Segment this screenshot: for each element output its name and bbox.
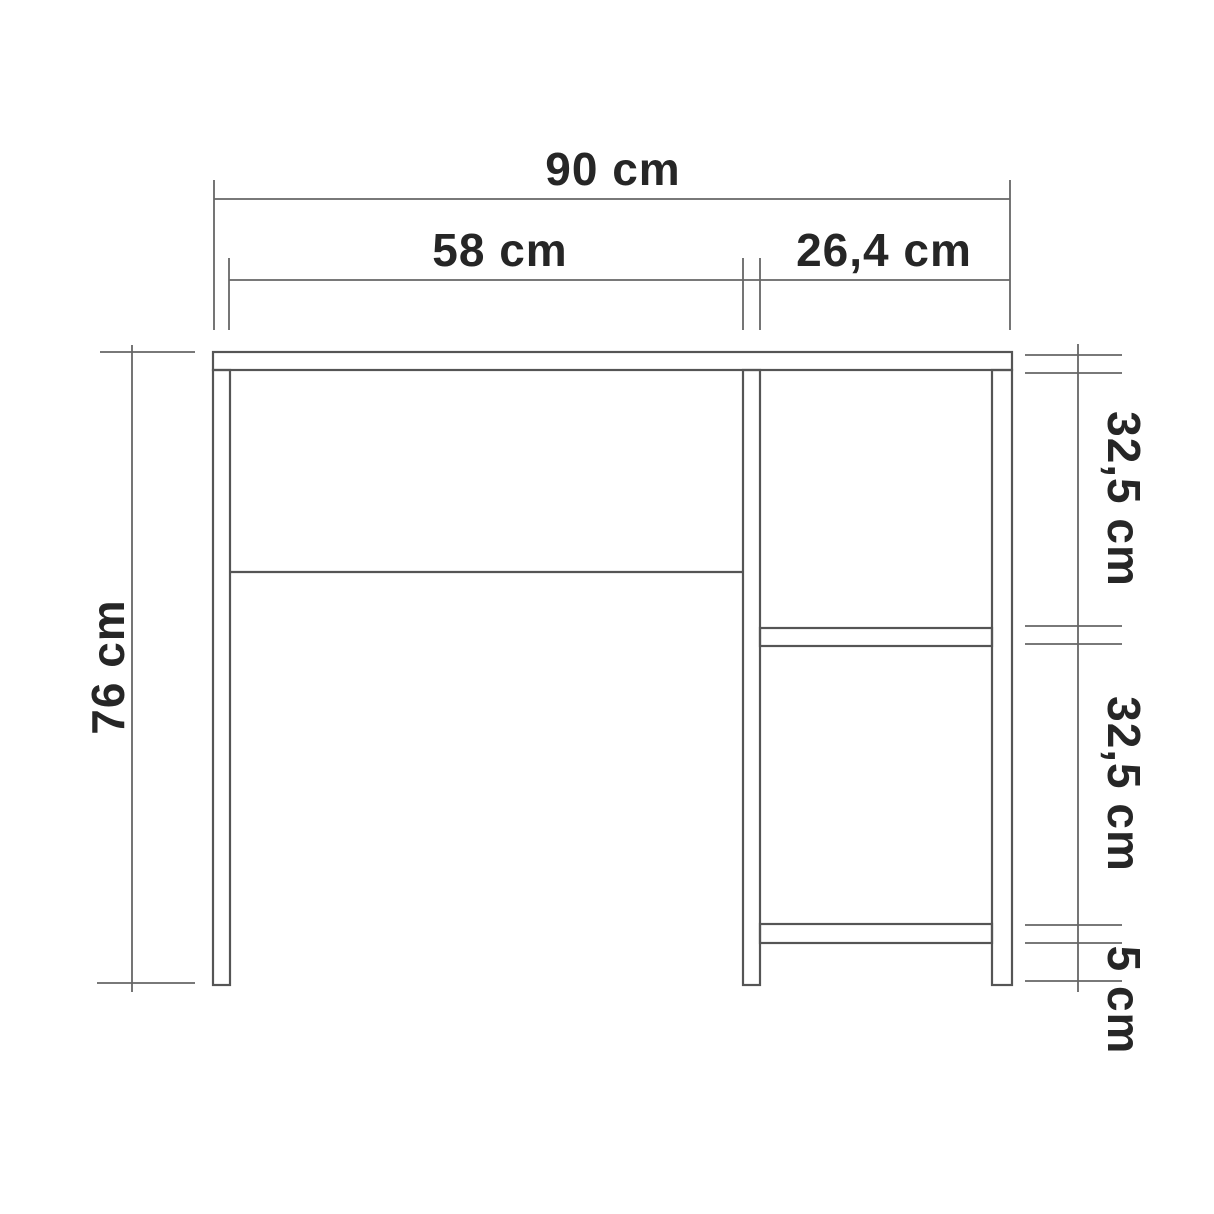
- desk-structure: [213, 352, 1012, 985]
- bottom-shelf: [760, 924, 992, 943]
- center-divider-panel: [743, 370, 760, 985]
- label-bottom-clearance: 5 cm: [1098, 946, 1150, 1055]
- width-dimensions: 90 cm 58 cm 26,4 cm: [214, 143, 1010, 330]
- middle-shelf: [760, 628, 992, 646]
- label-lower-shelf-spacing: 32,5 cm: [1098, 696, 1150, 872]
- tabletop: [213, 352, 1012, 370]
- desk-dimension-drawing: 90 cm 58 cm 26,4 cm 76 cm 32,5: [0, 0, 1214, 1214]
- right-leg-panel: [992, 370, 1012, 985]
- label-upper-shelf-spacing: 32,5 cm: [1098, 411, 1150, 587]
- technical-drawing-canvas: 90 cm 58 cm 26,4 cm 76 cm 32,5: [0, 0, 1214, 1214]
- label-desk-bay-width: 58 cm: [432, 224, 567, 276]
- label-shelf-bay-width: 26,4 cm: [796, 224, 972, 276]
- label-total-height: 76 cm: [82, 599, 134, 734]
- shelf-spacing-dimensions: 32,5 cm 32,5 cm 5 cm: [1025, 344, 1150, 1054]
- label-total-width: 90 cm: [545, 143, 680, 195]
- left-leg-panel: [213, 370, 230, 985]
- height-dimension: 76 cm: [82, 345, 195, 992]
